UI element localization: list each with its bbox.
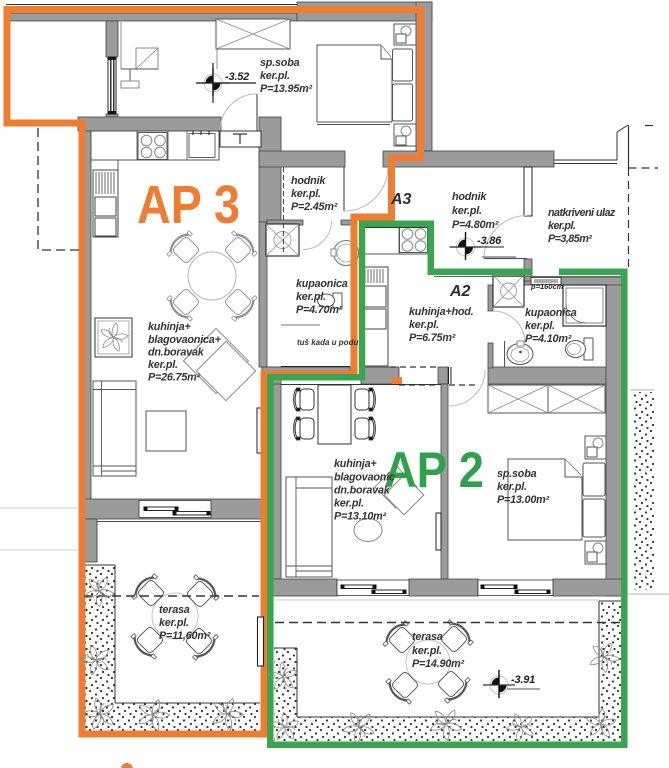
svg-text:P=2.45m²: P=2.45m²: [291, 201, 338, 213]
svg-text:P=3,85m²: P=3,85m²: [548, 233, 592, 245]
svg-text:AP 2: AP 2: [384, 442, 484, 498]
svg-text:ker.pl.: ker.pl.: [497, 481, 527, 493]
svg-text:hodnik: hodnik: [291, 175, 326, 187]
svg-text:P=13.95m²: P=13.95m²: [260, 83, 313, 95]
svg-text:P=14.90m²: P=14.90m²: [412, 658, 465, 670]
svg-text:kupaonica: kupaonica: [525, 307, 577, 319]
svg-text:P=4.80m²: P=4.80m²: [452, 219, 499, 231]
svg-text:ker.pl.: ker.pl.: [334, 498, 364, 510]
svg-text:A3: A3: [390, 191, 412, 208]
svg-text:ker.pl.: ker.pl.: [260, 70, 290, 82]
svg-text:P=6.75m²: P=6.75m²: [409, 332, 456, 344]
svg-text:-3.86: -3.86: [477, 235, 502, 247]
svg-text:blagovaonica+: blagovaonica+: [148, 334, 222, 346]
svg-text:terasa: terasa: [159, 604, 190, 616]
svg-text:p=160cm: p=160cm: [530, 282, 564, 291]
svg-text:natkriveni ulaz: natkriveni ulaz: [548, 207, 616, 219]
svg-text:sp.soba: sp.soba: [497, 468, 537, 480]
svg-text:ker.pl.: ker.pl.: [148, 359, 178, 371]
svg-text:P=13.10m²: P=13.10m²: [334, 511, 387, 523]
svg-text:P=13.00m²: P=13.00m²: [497, 494, 550, 506]
svg-text:hodnik: hodnik: [452, 191, 487, 203]
svg-text:P=26.75m²: P=26.75m²: [148, 372, 201, 384]
svg-text:tuš kada u podu: tuš kada u podu: [297, 338, 358, 347]
svg-text:P=11,60m²: P=11,60m²: [159, 630, 211, 642]
svg-text:kuhinja+hod.: kuhinja+hod.: [409, 306, 474, 318]
svg-text:ker.pl.: ker.pl.: [159, 617, 189, 629]
svg-text:ker.pl.: ker.pl.: [525, 320, 555, 332]
svg-text:P=4.10m²: P=4.10m²: [525, 333, 572, 345]
svg-text:AP 3: AP 3: [137, 175, 240, 235]
svg-text:kuhinja+: kuhinja+: [148, 321, 191, 333]
svg-text:-3.52: -3.52: [225, 71, 249, 83]
svg-text:-3.91: -3.91: [511, 674, 535, 686]
svg-text:ker.pl.: ker.pl.: [296, 291, 326, 303]
svg-text:blagovaonic: blagovaonic: [334, 472, 395, 484]
svg-text:ker.pl.: ker.pl.: [548, 220, 576, 232]
svg-text:terasa: terasa: [412, 631, 443, 643]
svg-text:sp.soba: sp.soba: [260, 57, 300, 69]
svg-text:dn.boravak: dn.boravak: [334, 485, 391, 497]
svg-text:ker.pl.: ker.pl.: [291, 188, 321, 200]
svg-text:P=4.70m²: P=4.70m²: [296, 304, 343, 316]
svg-text:ker.pl.: ker.pl.: [409, 319, 439, 331]
svg-text:A2: A2: [449, 283, 471, 300]
svg-text:kupaonica: kupaonica: [296, 278, 348, 290]
svg-text:ker.pl.: ker.pl.: [412, 645, 442, 657]
svg-text:dn.boravak: dn.boravak: [148, 347, 205, 359]
svg-text:kuhinja+: kuhinja+: [334, 458, 377, 470]
svg-text:ker.pl.: ker.pl.: [452, 205, 482, 217]
